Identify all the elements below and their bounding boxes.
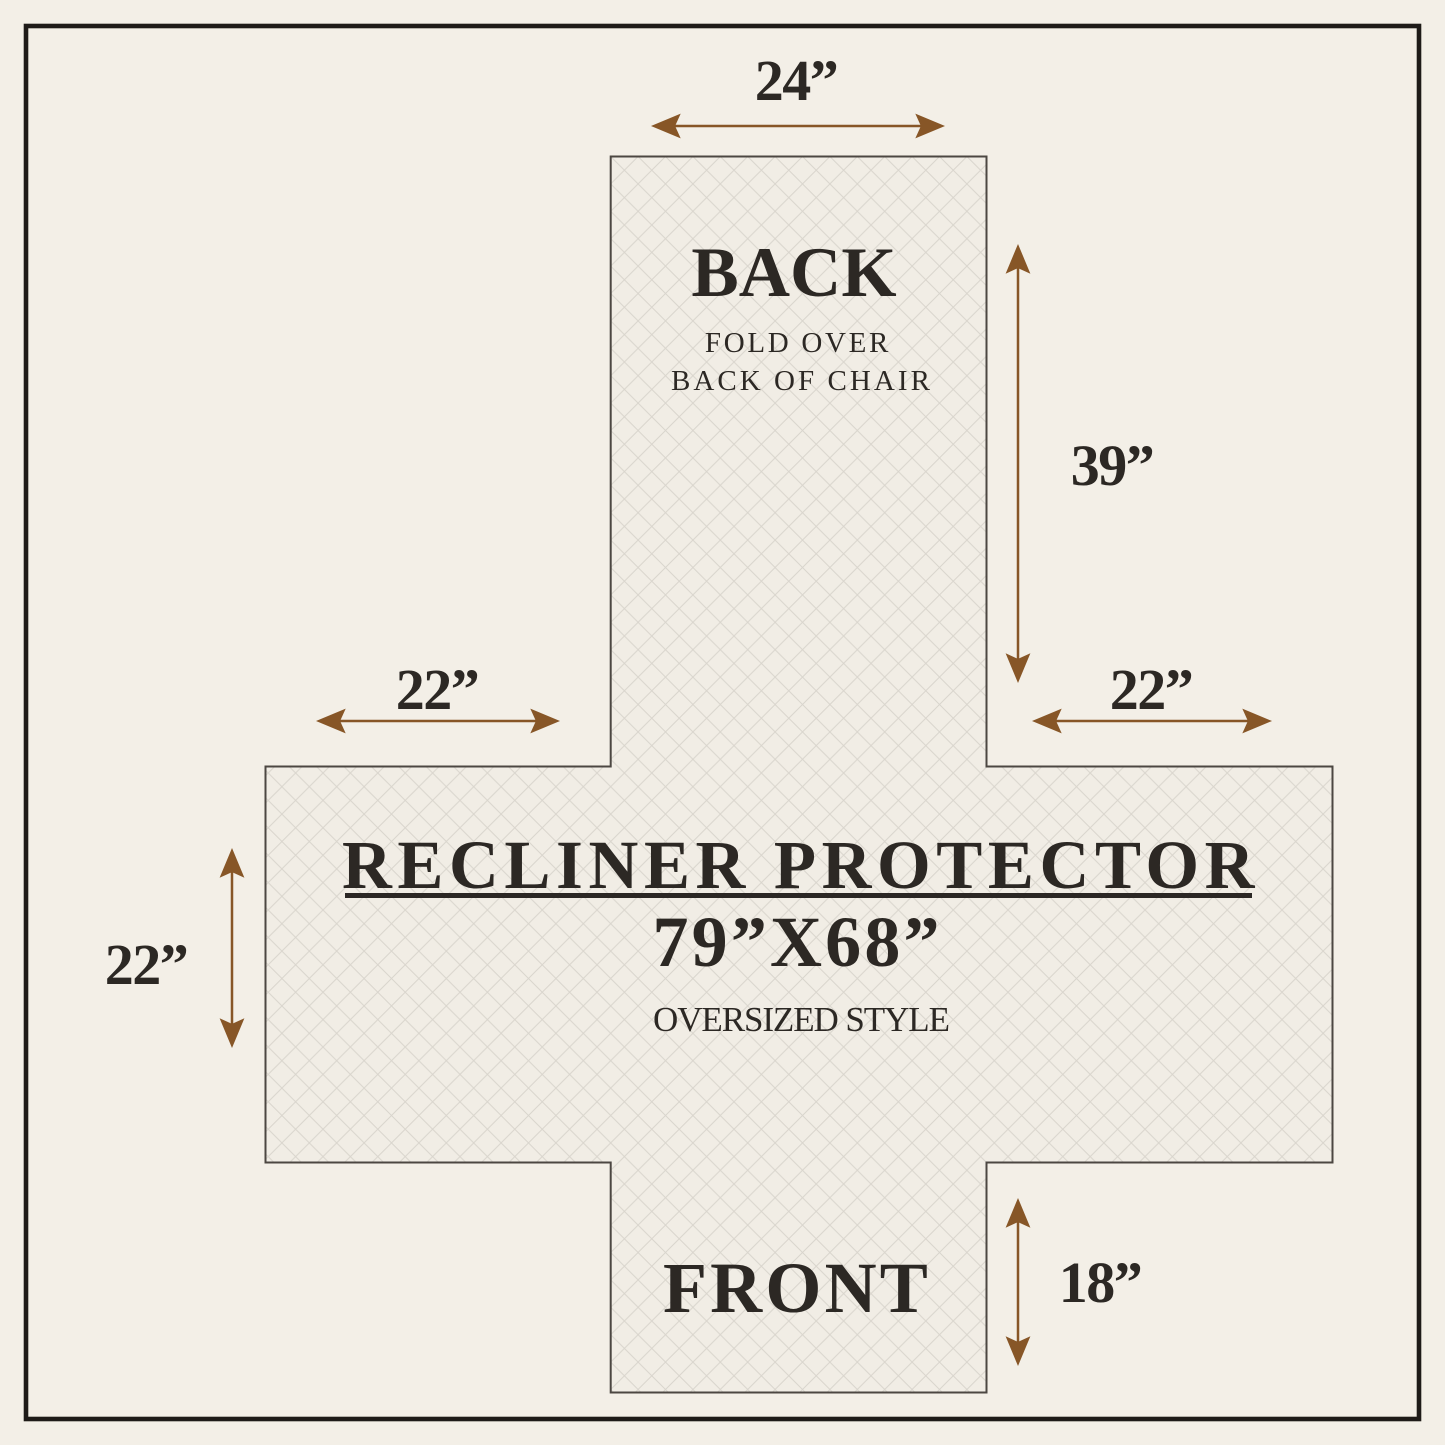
svg-text:RECLINER PROTECTOR: RECLINER PROTECTOR	[342, 827, 1260, 903]
svg-text:BACK: BACK	[691, 234, 896, 312]
svg-text:BACK OF CHAIR: BACK OF CHAIR	[671, 365, 933, 397]
svg-text:39”: 39”	[1071, 433, 1154, 498]
svg-text:24”: 24”	[755, 48, 838, 113]
svg-text:OVERSIZED STYLE: OVERSIZED STYLE	[653, 1000, 950, 1039]
svg-text:22”: 22”	[1110, 657, 1193, 722]
svg-text:18”: 18”	[1059, 1250, 1142, 1315]
svg-text:FRONT: FRONT	[663, 1248, 931, 1328]
svg-text:22”: 22”	[105, 932, 188, 997]
svg-text:FOLD OVER: FOLD OVER	[705, 327, 891, 359]
svg-text:79”X68”: 79”X68”	[653, 902, 940, 982]
svg-text:22”: 22”	[396, 657, 479, 722]
